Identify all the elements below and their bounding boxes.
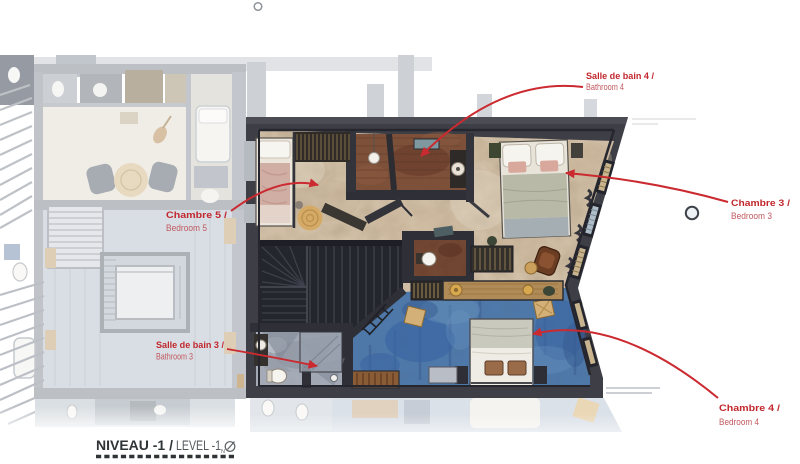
svg-text:Salle de bain 4 /: Salle de bain 4 / <box>586 71 654 82</box>
svg-text:N: N <box>221 449 225 455</box>
svg-text:Salle de bain 3 /: Salle de bain 3 / <box>156 340 224 351</box>
svg-text:Bathroom 3: Bathroom 3 <box>156 352 193 363</box>
svg-text:Bedroom 5: Bedroom 5 <box>166 223 207 234</box>
svg-text:Bedroom 3: Bedroom 3 <box>731 211 772 222</box>
svg-text:Bathroom 4: Bathroom 4 <box>586 82 624 93</box>
svg-text:Chambre 3 /: Chambre 3 / <box>731 198 790 209</box>
svg-text:LEVEL -1: LEVEL -1 <box>176 437 221 453</box>
svg-text:NIVEAU -1 /: NIVEAU -1 / <box>96 437 173 453</box>
svg-text:Chambre 4 /: Chambre 4 / <box>719 403 780 414</box>
svg-text:Chambre 5 /: Chambre 5 / <box>166 210 227 221</box>
svg-text:Bedroom 4: Bedroom 4 <box>719 417 759 428</box>
